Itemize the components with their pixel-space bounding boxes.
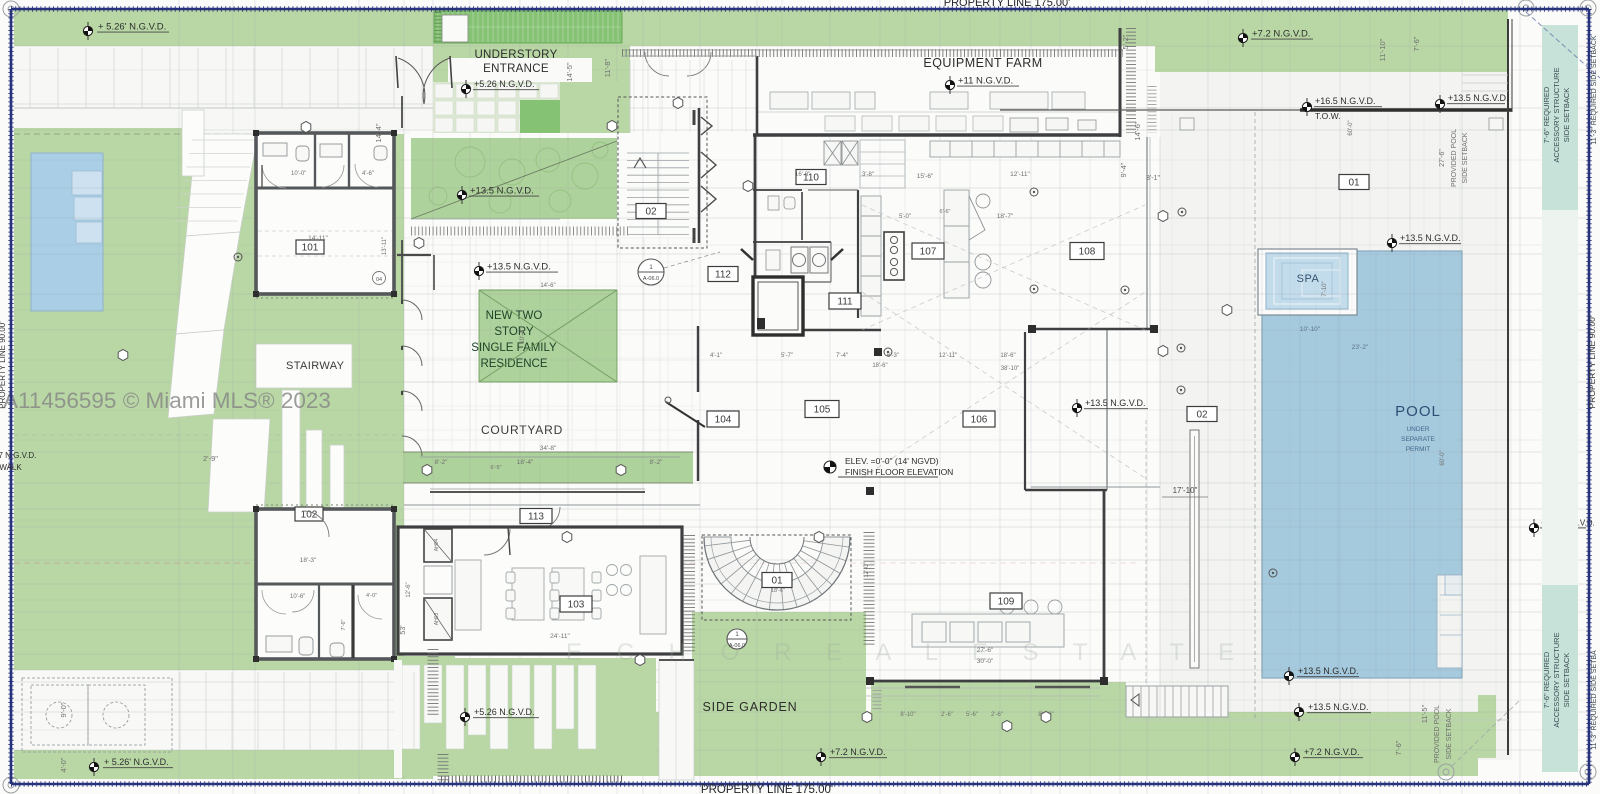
svg-text:12'-6": 12'-6" xyxy=(406,582,412,597)
svg-text:5'-2": 5'-2" xyxy=(1121,34,1130,49)
svg-text:01: 01 xyxy=(1348,178,1360,189)
svg-text:+5.26 N.G.V.D.: +5.26 N.G.V.D. xyxy=(474,79,534,89)
svg-text:NEW TWO: NEW TWO xyxy=(486,310,543,322)
svg-text:7'-4": 7'-4" xyxy=(836,353,848,359)
svg-text:+13.5 N.G.V.D.: +13.5 N.G.V.D. xyxy=(487,262,551,273)
svg-text:10'-4": 10'-4" xyxy=(520,328,526,343)
svg-text:+13.5 N.G.V.D.: +13.5 N.G.V.D. xyxy=(1448,93,1508,103)
svg-text:SEPARATE: SEPARATE xyxy=(1401,436,1435,443)
svg-text:9'-0": 9'-0" xyxy=(59,702,68,717)
svg-text:2'-6": 2'-6" xyxy=(991,712,1003,718)
svg-text:+7.2 N.G.V.D.: +7.2 N.G.V.D. xyxy=(1252,29,1311,40)
svg-text:SIDE GARDEN: SIDE GARDEN xyxy=(703,700,798,714)
svg-text:12'-11": 12'-11" xyxy=(939,353,957,359)
svg-text:EWALK: EWALK xyxy=(0,463,22,472)
svg-text:12'-11": 12'-11" xyxy=(1010,171,1030,178)
svg-text:+ 5.26' N.G.V.D.: + 5.26' N.G.V.D. xyxy=(104,757,169,767)
svg-text:2'-9": 2'-9" xyxy=(203,454,218,463)
svg-text:SIDE SETBACK: SIDE SETBACK xyxy=(1562,88,1571,143)
svg-text:111: 111 xyxy=(837,297,853,308)
svg-text:E C H O R E A L E S T A T E: E C H O R E A L E S T A T E xyxy=(566,639,1248,666)
svg-text:POOL: POOL xyxy=(1395,403,1441,420)
svg-text:6'-5": 6'-5" xyxy=(491,465,502,471)
svg-text:3'-1": 3'-1" xyxy=(1146,175,1160,182)
svg-text:18'-7": 18'-7" xyxy=(997,213,1014,220)
svg-text:04: 04 xyxy=(376,277,382,283)
svg-text:PROPERTY LINE 90.00': PROPERTY LINE 90.00' xyxy=(1587,315,1597,408)
svg-text:17'-10": 17'-10" xyxy=(1173,486,1198,495)
svg-text:103: 103 xyxy=(568,600,585,611)
svg-text:7'-6" REQUIRED: 7'-6" REQUIRED xyxy=(1542,651,1551,708)
svg-text:AH03: AH03 xyxy=(434,613,440,626)
svg-text:+7.2 N.G.V.D.: +7.2 N.G.V.D. xyxy=(830,747,885,757)
svg-text:18'-3": 18'-3" xyxy=(300,557,317,564)
svg-text:+ 5.26' N.G.V.D.: + 5.26' N.G.V.D. xyxy=(98,22,166,33)
svg-text:SPA: SPA xyxy=(1297,273,1320,285)
svg-text:PROVIDED POOL: PROVIDED POOL xyxy=(1451,129,1458,187)
svg-text:60'-0": 60'-0" xyxy=(1348,120,1354,135)
svg-text:27'-6": 27'-6" xyxy=(1439,149,1446,167)
svg-text:SIDE SETBACK: SIDE SETBACK xyxy=(1446,708,1453,759)
svg-text:4'-0": 4'-0" xyxy=(366,593,377,599)
svg-text:5'-0": 5'-0" xyxy=(899,214,911,220)
svg-text:14'-5": 14'-5" xyxy=(565,62,574,81)
svg-text:13'-11": 13'-11" xyxy=(382,237,388,255)
svg-text:23'-2": 23'-2" xyxy=(1352,344,1369,351)
svg-text:11'-3" REQUIRED SIDE SETBACK: 11'-3" REQUIRED SIDE SETBACK xyxy=(1591,35,1598,144)
svg-text:10'-0": 10'-0" xyxy=(291,171,306,177)
svg-text:4'-1": 4'-1" xyxy=(710,353,722,359)
svg-text:7'-6": 7'-6" xyxy=(1412,36,1421,51)
svg-text:ELEV. =0'-0" (14' NGVD): ELEV. =0'-0" (14' NGVD) xyxy=(845,456,939,466)
svg-text:4'-0": 4'-0" xyxy=(59,757,68,772)
svg-text:109: 109 xyxy=(998,597,1015,608)
svg-text:14'-6": 14'-6" xyxy=(1133,121,1142,140)
svg-text:+7.2 N.G.V.D.: +7.2 N.G.V.D. xyxy=(1304,747,1359,757)
svg-text:+13.5 N.G.V.D.: +13.5 N.G.V.D. xyxy=(1400,233,1460,243)
svg-text:+13.5 N.G.V.D.: +13.5 N.G.V.D. xyxy=(1308,702,1368,712)
svg-text:SIDE SETBACK: SIDE SETBACK xyxy=(1562,653,1571,708)
svg-text:10'-10": 10'-10" xyxy=(1300,326,1321,333)
svg-text:11'-3" REQUIRED SIDE SETBA: 11'-3" REQUIRED SIDE SETBA xyxy=(1591,650,1598,750)
svg-text:7'-10": 7'-10" xyxy=(1322,281,1328,296)
svg-text:104: 104 xyxy=(715,415,732,426)
svg-text:PROPERTY LINE 90.00': PROPERTY LINE 90.00' xyxy=(0,321,7,409)
svg-text:AH04: AH04 xyxy=(434,539,440,552)
svg-text:106: 106 xyxy=(971,415,988,426)
svg-text:2'-6": 2'-6" xyxy=(941,712,953,718)
svg-text:60'-0": 60'-0" xyxy=(1440,450,1446,465)
svg-text:5'-7": 5'-7" xyxy=(781,353,793,359)
svg-text:15'-6": 15'-6" xyxy=(917,173,934,180)
svg-text:12'-0": 12'-0" xyxy=(864,562,870,577)
svg-text:PROPERTY LINE 175.00': PROPERTY LINE 175.00' xyxy=(944,0,1070,9)
svg-text:PROPERTY LINE 175.00': PROPERTY LINE 175.00' xyxy=(701,784,833,794)
svg-text:18'-6": 18'-6" xyxy=(872,363,887,369)
svg-text:4'-6": 4'-6" xyxy=(362,171,374,177)
svg-text:02: 02 xyxy=(645,207,657,218)
svg-text:18'-4": 18'-4" xyxy=(517,459,534,466)
svg-text:A-06.0: A-06.0 xyxy=(729,643,745,649)
svg-text:UNDERSTORY: UNDERSTORY xyxy=(474,49,557,61)
svg-text:105: 105 xyxy=(814,405,831,416)
svg-text:PROVIDED POOL: PROVIDED POOL xyxy=(1434,705,1441,763)
svg-text:14'-4": 14'-4" xyxy=(374,123,383,142)
svg-text:3'-8": 3'-8" xyxy=(862,172,874,178)
svg-text:ACCESSORY STRUCTURE: ACCESSORY STRUCTURE xyxy=(1552,632,1561,727)
svg-text:113: 113 xyxy=(528,512,544,523)
svg-text:A11456595 © Miami MLS® 2023: A11456595 © Miami MLS® 2023 xyxy=(3,388,331,413)
svg-text:COURTYARD: COURTYARD xyxy=(481,423,563,437)
svg-text:+5.26 N.G.V.D.: +5.26 N.G.V.D. xyxy=(474,707,534,717)
svg-text:101: 101 xyxy=(302,243,319,254)
svg-text:+13.5 N.G.V.D.: +13.5 N.G.V.D. xyxy=(1298,666,1358,676)
svg-text:ENTRANCE: ENTRANCE xyxy=(483,63,549,75)
svg-text:+13.5 N.G.V.D.: +13.5 N.G.V.D. xyxy=(470,186,534,197)
svg-text:14'-6": 14'-6" xyxy=(540,283,555,289)
svg-text:7'-6": 7'-6" xyxy=(1394,740,1403,755)
svg-text:11'-10": 11'-10" xyxy=(1378,38,1387,61)
svg-text:+11 N.G.V.D.: +11 N.G.V.D. xyxy=(958,76,1013,87)
svg-text:FINISH FLOOR ELEVATION: FINISH FLOOR ELEVATION xyxy=(845,467,953,477)
svg-text:EQUIPMENT FARM: EQUIPMENT FARM xyxy=(923,56,1042,70)
svg-text:+16.5 N.G.V.D.: +16.5 N.G.V.D. xyxy=(1315,96,1375,106)
svg-text:112: 112 xyxy=(715,270,731,281)
svg-text:RESIDENCE: RESIDENCE xyxy=(480,358,547,370)
svg-text:11'-8": 11'-8" xyxy=(603,58,612,77)
svg-text:7'-6": 7'-6" xyxy=(341,619,347,630)
svg-text:+13.5 N.G.V.D.: +13.5 N.G.V.D. xyxy=(1085,398,1145,408)
svg-text:7'-6" REQUIRED: 7'-6" REQUIRED xyxy=(1542,86,1551,143)
svg-text:10'-6": 10'-6" xyxy=(290,594,305,600)
svg-text:107: 107 xyxy=(920,247,937,258)
svg-text:T.O.W.: T.O.W. xyxy=(1315,111,1341,121)
svg-text:11'-5": 11'-5" xyxy=(1420,704,1429,723)
svg-text:53': 53' xyxy=(400,625,407,634)
svg-text:UNDER: UNDER xyxy=(1406,426,1429,433)
svg-text:6'-6": 6'-6" xyxy=(940,209,951,215)
svg-text:108: 108 xyxy=(1079,247,1096,258)
svg-text:8'-2": 8'-2" xyxy=(650,459,664,466)
svg-text:ACCESSORY STRUCTURE: ACCESSORY STRUCTURE xyxy=(1552,67,1561,162)
svg-text:01: 01 xyxy=(771,576,783,587)
svg-text:18'-6": 18'-6" xyxy=(1000,353,1015,359)
svg-text:8'-2": 8'-2" xyxy=(435,459,449,466)
svg-text:34'-8": 34'-8" xyxy=(540,445,557,452)
svg-text:STAIRWAY: STAIRWAY xyxy=(286,360,345,372)
svg-text:8'-10": 8'-10" xyxy=(900,712,915,718)
svg-text:5'-6": 5'-6" xyxy=(966,712,978,718)
svg-text:SINGLE FAMILY: SINGLE FAMILY xyxy=(471,342,557,354)
svg-text:PERMIT: PERMIT xyxy=(1406,446,1431,453)
svg-text:A-06.0: A-06.0 xyxy=(643,276,659,282)
svg-text:STORY: STORY xyxy=(494,326,534,338)
svg-text:18'-6": 18'-6" xyxy=(771,588,785,594)
svg-text:02: 02 xyxy=(1196,410,1208,421)
svg-text:9'-4": 9'-4" xyxy=(1119,162,1128,177)
svg-text:SIDE SETBACK: SIDE SETBACK xyxy=(1462,132,1469,183)
svg-text:38'-10": 38'-10" xyxy=(1001,366,1020,372)
svg-text:16'-8": 16'-8" xyxy=(795,172,810,178)
svg-text:37 N.G.V.D.: 37 N.G.V.D. xyxy=(0,451,36,460)
